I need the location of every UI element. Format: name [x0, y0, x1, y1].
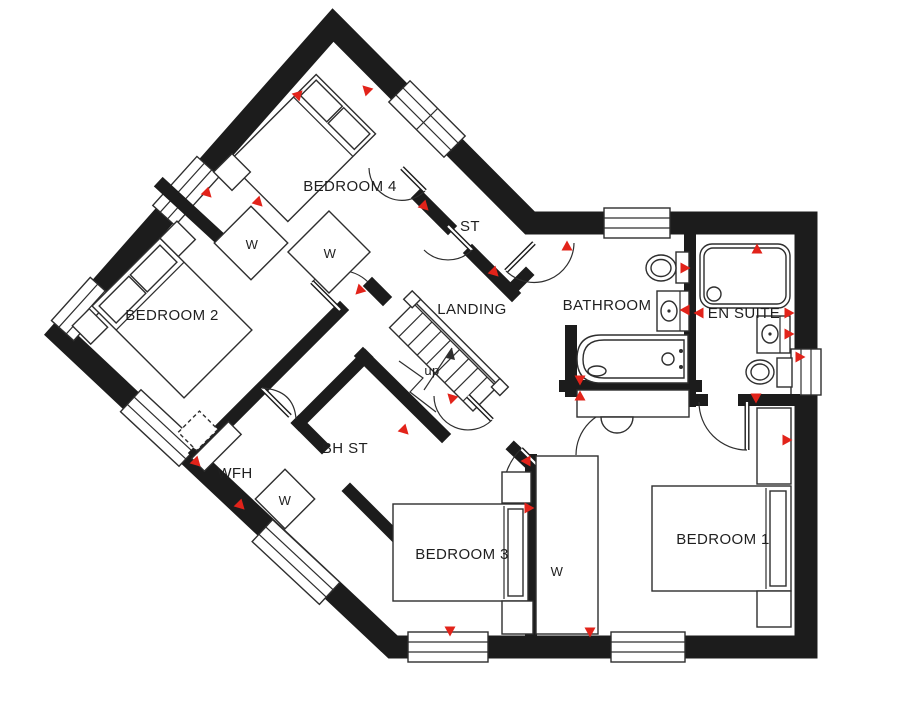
stairs-up-label: up — [424, 363, 439, 378]
wardrobe-label: W — [246, 237, 259, 252]
wardrobe-label: W — [279, 493, 292, 508]
room-label-landing: LANDING — [437, 301, 506, 318]
bath-icon — [577, 335, 688, 383]
floor-plan: BEDROOM 4 ST BATHROOM EN SUITE LANDING B… — [0, 0, 901, 707]
bedside-table-icon — [502, 472, 531, 503]
room-label-ensuite: EN SUITE — [708, 305, 780, 322]
room-label-wfh: WFH — [217, 465, 252, 482]
room-label-bulkhead-store: BH ST — [322, 440, 368, 457]
wall-landing-corner — [372, 286, 383, 297]
window — [408, 632, 488, 662]
bedside-table-icon — [757, 591, 791, 627]
room-label-bedroom4: BEDROOM 4 — [303, 178, 397, 195]
shower-icon — [700, 244, 790, 308]
wardrobe-label: W — [324, 246, 337, 261]
room-label-bedroom2: BEDROOM 2 — [125, 307, 219, 324]
room-label-bedroom1: BEDROOM 1 — [676, 531, 770, 548]
wardrobe-icon — [757, 408, 791, 484]
window — [611, 632, 685, 662]
wardrobe-label: W — [551, 564, 564, 579]
floor-plan-canvas: BEDROOM 4 ST BATHROOM EN SUITE LANDING B… — [0, 0, 901, 707]
window — [604, 208, 670, 238]
bedside-table-icon — [502, 601, 533, 634]
room-label-bedroom3: BEDROOM 3 — [415, 546, 509, 563]
room-label-store: ST — [460, 218, 480, 235]
wardrobe-icon — [536, 456, 598, 634]
room-label-bathroom: BATHROOM — [563, 297, 652, 314]
